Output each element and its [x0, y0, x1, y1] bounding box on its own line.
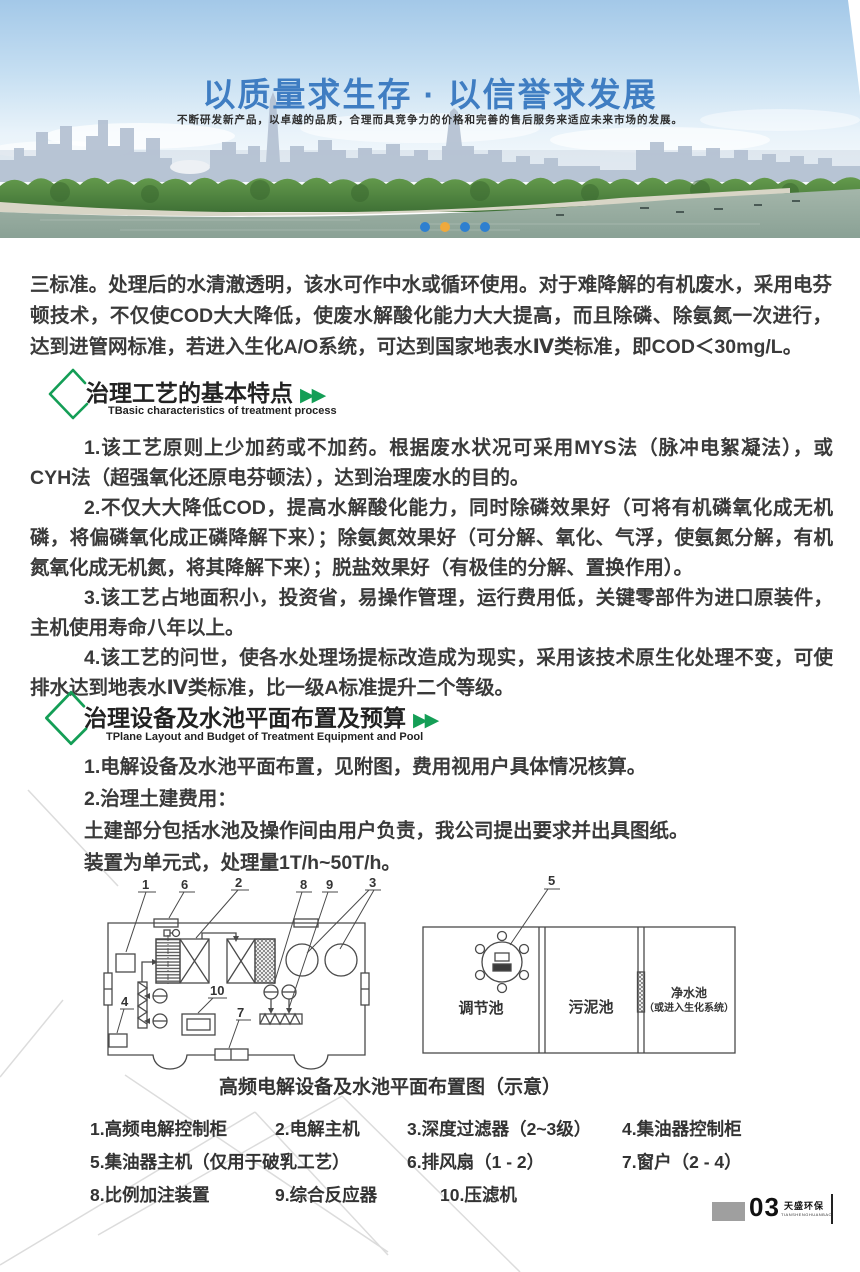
callout-1: 1 [142, 877, 149, 892]
legend-item: 7.窗户（2 - 4） [622, 1149, 742, 1174]
section1-title: 治理工艺的基本特点 [86, 380, 293, 406]
carousel-dot[interactable] [460, 222, 470, 232]
brand-subtext: TIANSHENGHUANBAO [781, 1212, 827, 1217]
control-cabinet-icon [116, 954, 135, 972]
legend-item: 3.深度过滤器（2~3级） [407, 1116, 591, 1141]
callout-5: 5 [548, 873, 555, 888]
brochure-page: 以质量求生存 · 以信誉求发展 不断研发新产品，以卓越的品质，合理而具竞争力的价… [0, 0, 860, 1272]
intro-paragraph: 三标准。处理后的水清澈透明，该水可作中水或循环使用。对于难降解的有机废水，采用电… [30, 270, 832, 363]
legend-item: 2.电解主机 [275, 1116, 360, 1141]
cost-line-3: 土建部分包括水池及操作间由用户负责，我公司提出要求并出具图纸。 [84, 815, 824, 847]
carousel-dot-active[interactable] [440, 222, 450, 232]
section2-subtitle: TPlane Layout and Budget of Treatment Eq… [106, 731, 423, 743]
filter-icon [325, 944, 357, 976]
cost-line-1: 1.电解设备及水池平面布置，见附图，费用视用户具体情况核算。 [84, 751, 824, 783]
carousel-dots [420, 222, 490, 232]
callout-2: 2 [235, 875, 242, 890]
paragraph-3: 3.该工艺占地面积小，投资省，易操作管理，运行费用低，关键零部件为进口原装件，主… [30, 583, 833, 643]
legend-item: 1.高频电解控制柜 [90, 1116, 227, 1141]
brand-name: 天盛环保 [781, 1199, 827, 1212]
section1-subtitle: TBasic characteristics of treatment proc… [108, 405, 337, 417]
legend-item: 9.综合反应器 [275, 1182, 377, 1207]
banner: 以质量求生存 · 以信誉求发展 不断研发新产品，以卓越的品质，合理而具竞争力的价… [0, 0, 860, 238]
footer-swatch [712, 1202, 745, 1221]
paragraph-4: 4.该工艺的问世，使各水处理场提标改造成为现实，采用该技术原生化处理不变，可使排… [30, 643, 833, 703]
section1-paragraphs: 1.该工艺原则上少加药或不加药。根据废水状况可采用MYS法（脉冲电絮凝法），或C… [30, 433, 833, 703]
pool-divider [539, 927, 644, 1053]
callout-3: 3 [369, 875, 376, 890]
carousel-dot[interactable] [420, 222, 430, 232]
diagram-caption: 高频电解设备及水池平面布置图（示意） [90, 1072, 690, 1099]
double-arrow-icon: ▶▶ [413, 710, 436, 731]
page-number: 03 [749, 1192, 780, 1223]
filter-icon [286, 944, 318, 976]
double-arrow-icon: ▶▶ [300, 385, 323, 406]
pool1-label: 调节池 [458, 999, 503, 1017]
electrolysis-unit-icon [156, 930, 209, 988]
leader-lines [510, 889, 560, 945]
cost-line-2: 2.治理土建费用： [84, 783, 824, 815]
brand-divider-bar [831, 1194, 833, 1224]
legend-item: 10.压滤机 [440, 1182, 517, 1207]
banner-title: 以质量求生存 · 以信誉求发展 [0, 68, 860, 116]
callout-4: 4 [121, 994, 129, 1009]
oil-cabinet-icon [109, 1034, 127, 1047]
carousel-dot[interactable] [480, 222, 490, 232]
equipment-layout-diagram: 1 6 2 8 9 3 4 10 7 [90, 865, 410, 1075]
pool2-label: 污泥池 [568, 998, 613, 1016]
section2-lines: 1.电解设备及水池平面布置，见附图，费用视用户具体情况核算。 2.治理土建费用：… [84, 751, 824, 879]
paragraph-2: 2.不仅大大降低COD，提高水解酸化能力，同时除磷效果好（可将有机磷氧化成无机磷… [30, 493, 833, 583]
legend-item: 5.集油器主机（仅用于破乳工艺） [90, 1149, 350, 1174]
pool3-label: 净水池 [671, 985, 707, 1000]
callout-9: 9 [326, 877, 333, 892]
pump-icon [264, 985, 296, 1014]
callout-8: 8 [300, 877, 307, 892]
mixer-icon [476, 932, 529, 993]
legend-item: 4.集油器控制柜 [622, 1116, 742, 1141]
filter-press-icon [182, 1014, 215, 1035]
callout-7: 7 [237, 1005, 244, 1020]
pool3-sublabel: （或进入生化系统） [644, 1001, 734, 1014]
paragraph-1: 1.该工艺原则上少加药或不加药。根据废水状况可采用MYS法（脉冲电絮凝法），或C… [30, 433, 833, 493]
electrolysis-unit2-icon [227, 939, 275, 983]
section2-heading: 治理设备及水池平面布置及预算▶▶ [84, 699, 436, 733]
section2-title: 治理设备及水池平面布置及预算 [84, 705, 406, 731]
pools-layout-diagram: 5 调节池 污泥池 净水池 （或进入生化系统） [420, 865, 750, 1065]
legend-item: 8.比例加注装置 [90, 1182, 210, 1207]
callout-10: 10 [210, 983, 224, 998]
brand-logo: 天盛环保 TIANSHENGHUANBAO [781, 1199, 827, 1217]
section1-heading: 治理工艺的基本特点▶▶ [86, 374, 323, 408]
legend-item: 6.排风扇（1 - 2） [407, 1149, 544, 1174]
callout-6: 6 [181, 877, 188, 892]
reactor-bar-icon [260, 1014, 302, 1024]
banner-subtitle: 不断研发新产品，以卓越的品质，合理而具竞争力的价格和完善的售后服务来适应未来市场… [0, 112, 860, 127]
